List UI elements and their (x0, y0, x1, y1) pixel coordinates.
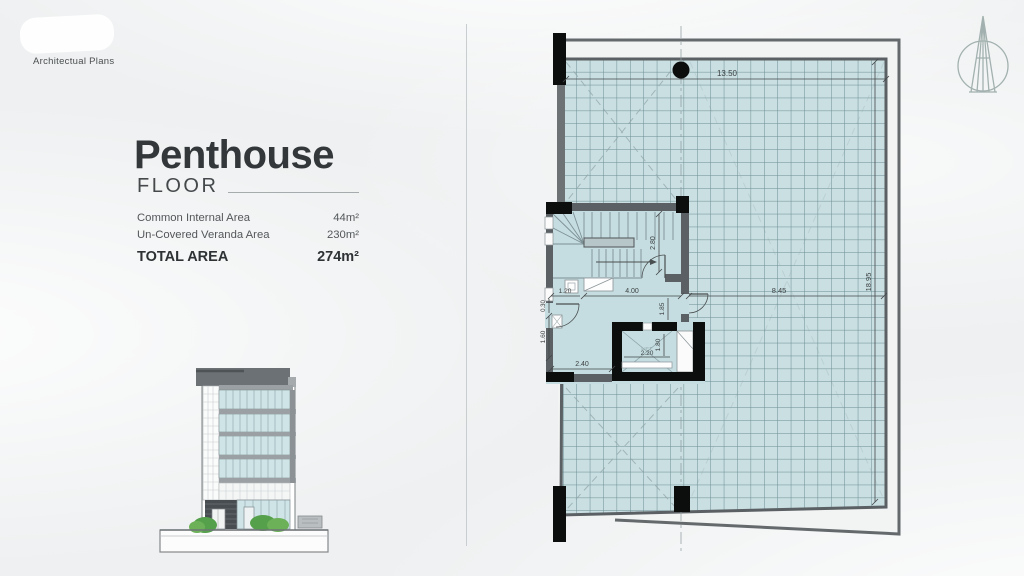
logo-spire (969, 16, 997, 92)
mezzanine-grid (219, 483, 290, 500)
total-label: TOTAL AREA (137, 249, 228, 266)
dim-entry-width: 1.20 (559, 288, 572, 295)
floor-plan: LIFT 13.50 2.80 4.00 (540, 20, 920, 565)
utility-box (298, 516, 322, 528)
area-row-veranda: Un-Covered Veranda Area 230m² (137, 227, 359, 244)
dim-lift-depth: 1.80 (655, 338, 662, 351)
divider-line (466, 24, 467, 546)
facade-grid-strip (203, 386, 219, 500)
dim-lift-width: 2.20 (641, 350, 654, 357)
page-subtitle: FLOOR (137, 176, 218, 196)
dim-veranda-width: 8.45 (772, 286, 787, 295)
title-underline (228, 192, 359, 193)
ground-floor (160, 500, 328, 533)
building-elevation (150, 360, 365, 560)
total-value: 274m² (317, 249, 359, 266)
dim-stair-depth: 2.80 (650, 236, 657, 250)
area-value: 44m² (333, 210, 359, 227)
dim-lobby-right: 1.85 (659, 302, 666, 315)
stair-handrail (584, 238, 634, 247)
page-subtitle-row: FLOOR (137, 176, 359, 196)
right-fin (290, 390, 295, 483)
area-table: Common Internal Area 44m² Un-Covered Ver… (137, 210, 359, 266)
page-title: Penthouse (134, 133, 334, 178)
area-row-internal: Common Internal Area 44m² (137, 210, 359, 227)
area-label: Un-Covered Veranda Area (137, 227, 270, 244)
dim-top-width: 13.50 (717, 69, 738, 78)
left-wall (557, 83, 565, 204)
area-value: 230m² (327, 227, 359, 244)
spire-tower-logo-icon (946, 12, 1020, 100)
dim-hall-bottom: 2.40 (575, 361, 589, 368)
page: Architectual Plans Penthouse FLOOR Commo… (0, 0, 1024, 576)
column-dot (673, 62, 690, 79)
corner-card (19, 14, 115, 55)
dim-left-lower: 1.60 (540, 330, 547, 343)
area-row-total: TOTAL AREA 274m² (137, 249, 359, 266)
dim-veranda-height: 18.95 (864, 273, 873, 292)
dim-hall-width: 4.00 (625, 288, 639, 295)
bush (189, 521, 205, 533)
dim-wall-niche: 0.30 (541, 300, 547, 312)
base-platform (160, 530, 328, 552)
area-label: Common Internal Area (137, 210, 250, 227)
elevator-sill (622, 362, 672, 368)
page-label: Architectual Plans (33, 56, 114, 67)
glass-floors (219, 385, 296, 483)
